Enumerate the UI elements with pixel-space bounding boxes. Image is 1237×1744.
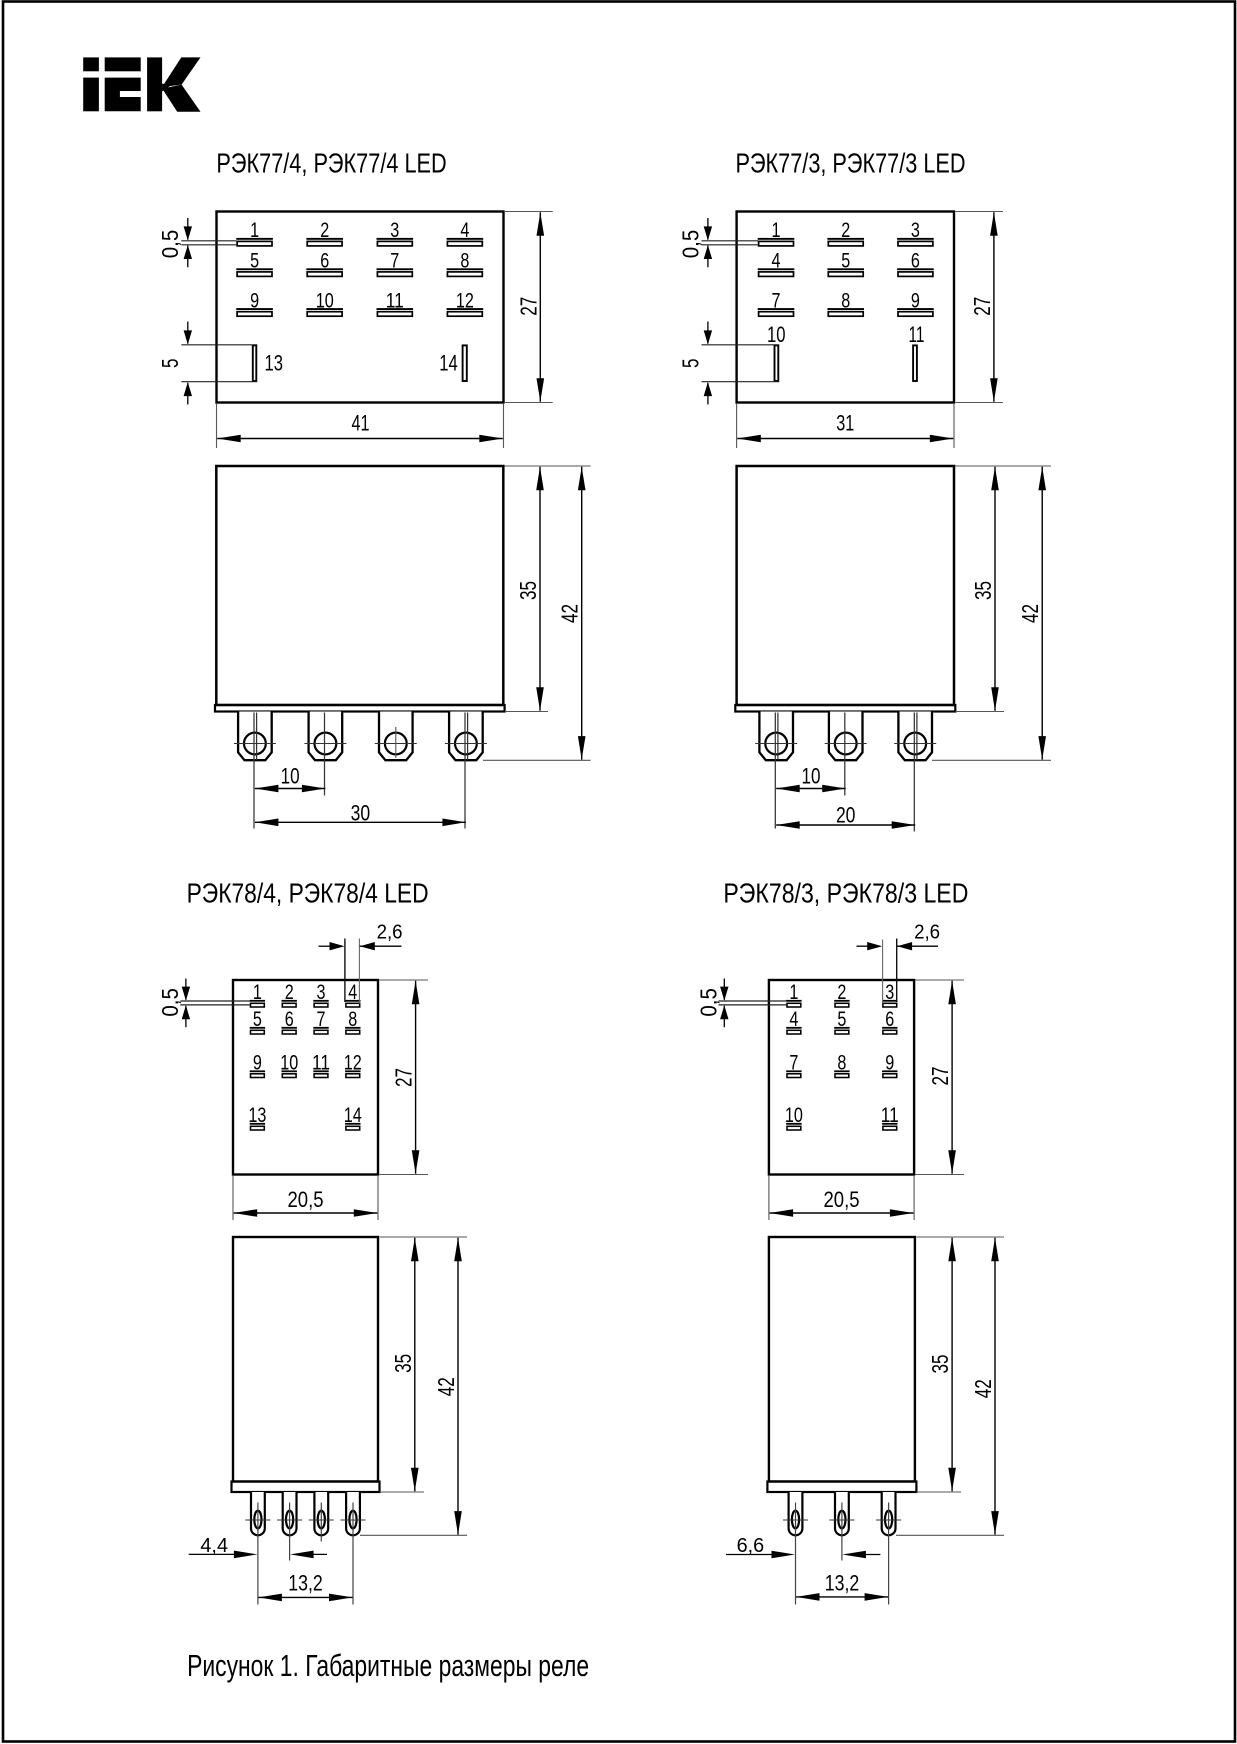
- svg-text:0,5: 0,5: [695, 988, 721, 1017]
- svg-text:35: 35: [515, 581, 541, 600]
- svg-text:РЭК78/3, РЭК78/3 LED: РЭК78/3, РЭК78/3 LED: [723, 877, 968, 908]
- svg-text:0,5: 0,5: [677, 230, 703, 259]
- svg-text:20: 20: [836, 803, 856, 828]
- svg-text:20,5: 20,5: [824, 1187, 860, 1212]
- svg-text:13,2: 13,2: [825, 1570, 860, 1595]
- svg-text:Рисунок 1. Габаритные размеры: Рисунок 1. Габаритные размеры реле: [187, 1648, 589, 1683]
- svg-text:27: 27: [391, 1068, 417, 1087]
- svg-text:РЭК77/3, РЭК77/3 LED: РЭК77/3, РЭК77/3 LED: [736, 148, 966, 179]
- svg-text:20,5: 20,5: [288, 1187, 324, 1212]
- svg-text:5: 5: [678, 358, 704, 368]
- svg-text:13: 13: [265, 351, 284, 376]
- svg-text:27: 27: [515, 297, 541, 316]
- svg-text:35: 35: [927, 1355, 953, 1374]
- svg-text:35: 35: [390, 1354, 416, 1373]
- svg-text:РЭК78/4, РЭК78/4 LED: РЭК78/4, РЭК78/4 LED: [187, 877, 429, 908]
- svg-text:35: 35: [970, 581, 996, 600]
- svg-text:42: 42: [1017, 604, 1043, 623]
- svg-text:10: 10: [767, 322, 786, 347]
- svg-text:42: 42: [433, 1377, 459, 1396]
- svg-text:6,6: 6,6: [737, 1535, 765, 1557]
- svg-text:41: 41: [352, 411, 370, 436]
- svg-text:30: 30: [351, 800, 371, 825]
- svg-text:0,5: 0,5: [157, 230, 183, 259]
- svg-text:2,6: 2,6: [377, 921, 403, 943]
- svg-text:4,4: 4,4: [200, 1535, 228, 1557]
- svg-text:13,2: 13,2: [288, 1570, 323, 1595]
- svg-text:31: 31: [836, 411, 854, 436]
- svg-text:27: 27: [927, 1067, 953, 1086]
- svg-text:10: 10: [802, 764, 821, 789]
- svg-text:27: 27: [969, 297, 995, 316]
- svg-text:0,5: 0,5: [157, 988, 183, 1017]
- svg-text:5: 5: [157, 358, 183, 368]
- svg-text:42: 42: [557, 604, 583, 623]
- svg-text:42: 42: [970, 1379, 996, 1398]
- svg-text:2,6: 2,6: [914, 921, 940, 943]
- svg-text:14: 14: [439, 351, 458, 376]
- svg-text:10: 10: [281, 764, 300, 789]
- svg-text:РЭК77/4, РЭК77/4 LED: РЭК77/4, РЭК77/4 LED: [216, 148, 446, 179]
- svg-text:11: 11: [909, 322, 925, 347]
